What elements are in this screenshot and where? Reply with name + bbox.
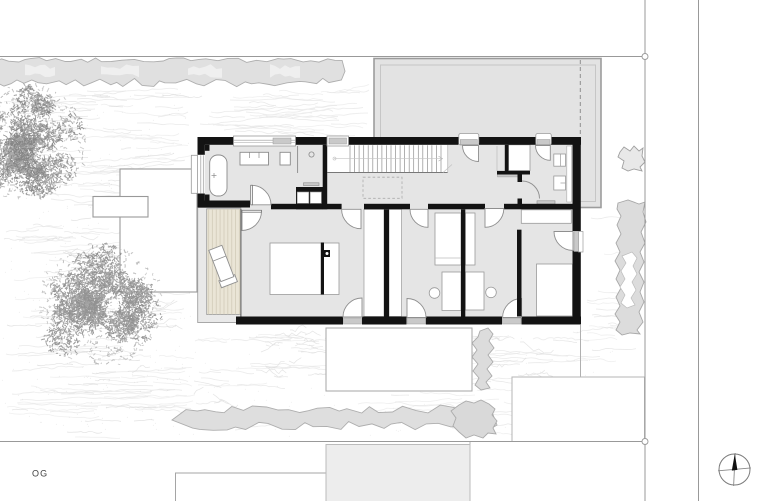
svg-text:OG: OG <box>32 469 48 479</box>
